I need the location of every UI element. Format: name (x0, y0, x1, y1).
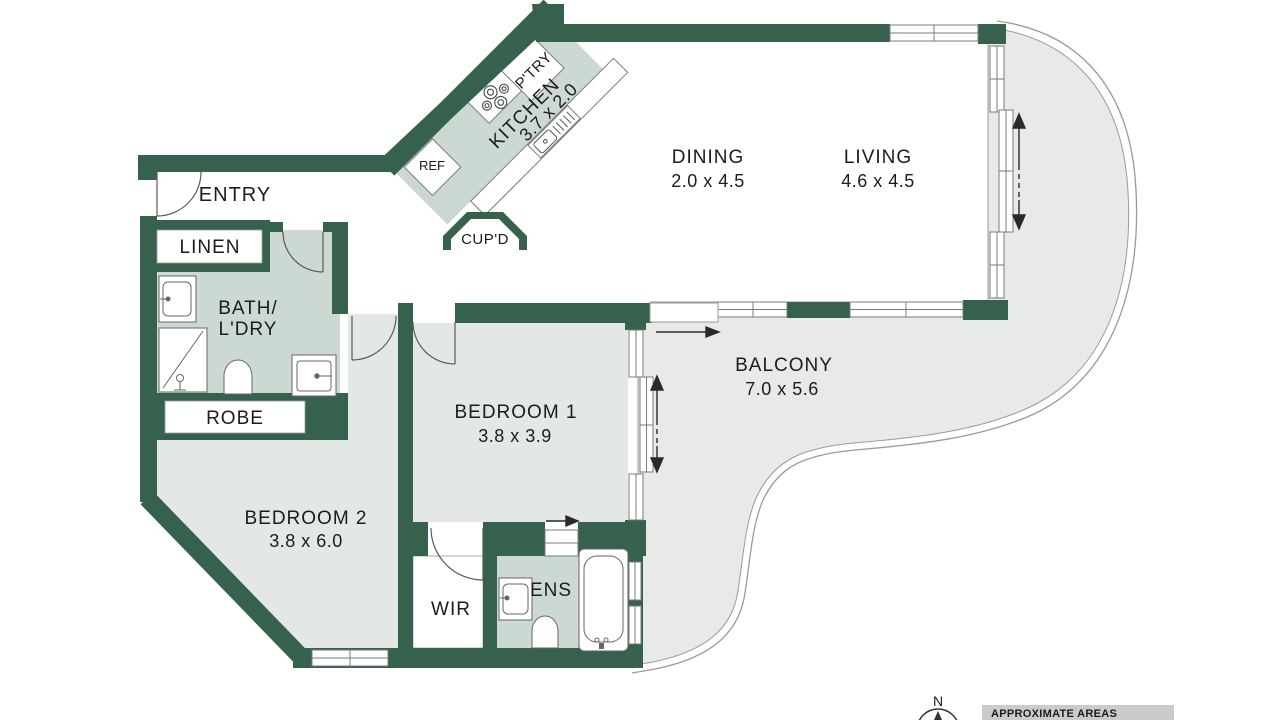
vanity-icon (499, 578, 532, 620)
room-label-bedroom2: BEDROOM 2 (244, 508, 367, 529)
room-dims-bedroom2: 3.8 x 6.0 (269, 531, 343, 551)
window (629, 330, 643, 377)
window (629, 474, 643, 520)
room-dims-bedroom1: 3.8 x 3.9 (478, 426, 552, 446)
door-arc (157, 172, 201, 216)
sliding-door (545, 530, 578, 556)
room-label-balcony: BALCONY (735, 355, 833, 376)
window (990, 232, 1004, 298)
window (990, 46, 1004, 112)
floorplan-svg: BALCONY 7.0 x 5.6 P'TRY KITCHEN (0, 0, 1280, 720)
balcony-floor (630, 28, 1129, 666)
compass: N (917, 693, 959, 720)
hall-corridor-floor (348, 314, 398, 440)
room-label-ens: ENS (530, 580, 572, 601)
room-label-wir: WIR (431, 599, 471, 620)
room-label-cupboard: CUP'D (461, 231, 509, 248)
room-label-bath-2: L'DRY (219, 319, 278, 340)
balcony-door-opening (650, 303, 718, 322)
vanity-icon (159, 276, 196, 322)
room-label-living: LIVING (844, 147, 912, 168)
room-dims-living: 4.6 x 4.5 (841, 171, 915, 191)
toilet-icon (532, 616, 558, 648)
room-dims-balcony: 7.0 x 5.6 (745, 379, 819, 399)
cupboard: CUP'D (443, 212, 527, 250)
window (718, 302, 787, 317)
room-label-robe: ROBE (206, 408, 264, 429)
window (850, 302, 963, 317)
window (890, 25, 978, 41)
room-label-dining: DINING (672, 147, 745, 168)
room-label-bath-1: BATH/ (218, 298, 278, 319)
window (629, 606, 641, 644)
bathtub-icon (579, 549, 628, 651)
room-label-bedroom1: BEDROOM 1 (454, 402, 577, 423)
laundry-tub-icon (292, 355, 336, 396)
window (629, 562, 641, 600)
sliding-door (999, 110, 1013, 232)
approximate-areas-label: APPROXIMATE AREAS (991, 708, 1117, 720)
approximate-areas-box: APPROXIMATE AREAS (982, 705, 1174, 720)
room-label-entry: ENTRY (199, 184, 271, 206)
room-dims-dining: 2.0 x 4.5 (671, 171, 745, 191)
room-label-linen: LINEN (180, 237, 241, 258)
window (312, 650, 388, 666)
room-label-ref: REF (419, 158, 445, 173)
compass-north-label: N (933, 693, 943, 709)
toilet-icon (224, 360, 252, 394)
balcony: BALCONY 7.0 x 5.6 (630, 21, 1137, 673)
floorplan-canvas: BALCONY 7.0 x 5.6 P'TRY KITCHEN (0, 0, 1280, 720)
shower-icon (159, 328, 207, 392)
